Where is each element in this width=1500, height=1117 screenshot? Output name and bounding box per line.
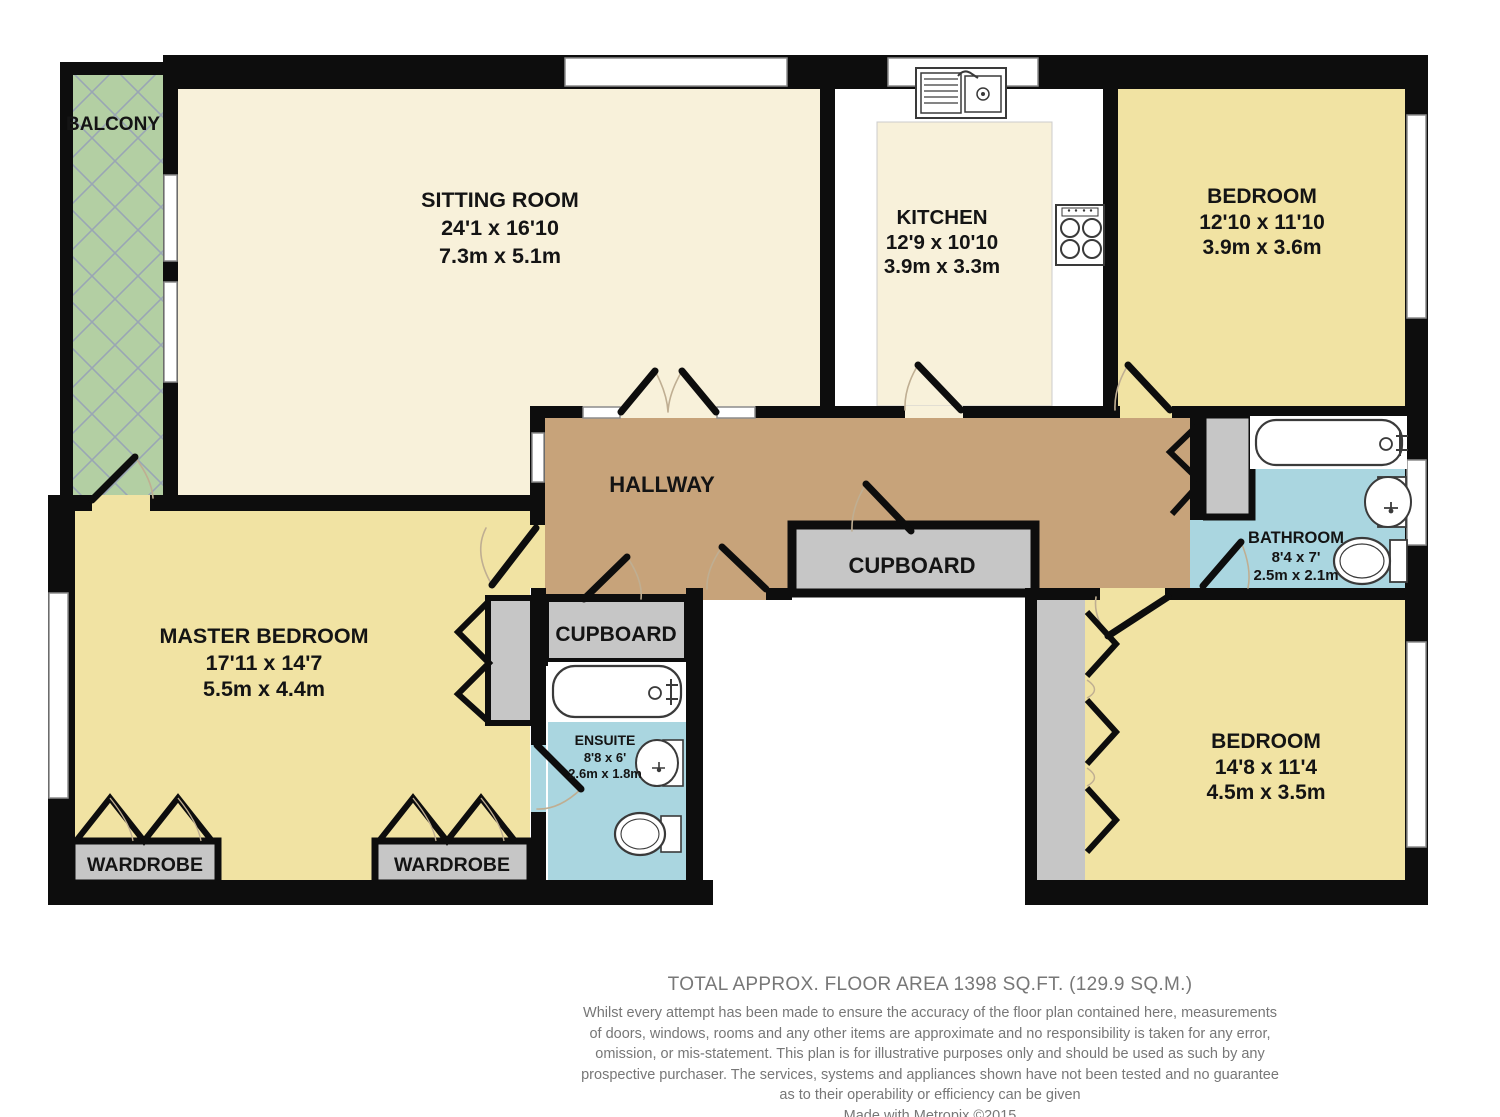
hall-cupboard-label: CUPBOARD [848, 553, 975, 578]
disclaimer: Whilst every attempt has been made to en… [430, 1003, 1430, 1106]
balcony-window-upper [164, 175, 177, 261]
floorplan-page: BALCONY SITTING ROOM 24'1 x 16'10 7.3m x… [0, 0, 1500, 1117]
wardrobe-right-label: WARDROBE [394, 854, 510, 876]
ensuite-bathtub-icon [548, 662, 686, 722]
bedroom-top-size-metric: 3.9m x 3.6m [1202, 236, 1321, 259]
footer: TOTAL APPROX. FLOOR AREA 1398 SQ.FT. (12… [430, 974, 1430, 1117]
total-floor-area: TOTAL APPROX. FLOOR AREA 1398 SQ.FT. (12… [430, 974, 1430, 996]
sitting-room-window [565, 58, 787, 86]
inner-cupboard-label: CUPBOARD [555, 623, 676, 646]
master-bedroom-label: MASTER BEDROOM [159, 624, 368, 648]
bathroom-sink-icon [1365, 477, 1411, 527]
ensuite-size-imperial: 8'8 x 6' [584, 750, 626, 765]
ensuite-toilet-icon [615, 813, 681, 855]
disclaimer-line: of doors, windows, rooms and any other i… [430, 1024, 1430, 1045]
sitting-room-size-imperial: 24'1 x 16'10 [441, 216, 559, 240]
ensuite-sink-icon [636, 740, 683, 786]
wardrobe-left-label: WARDROBE [87, 854, 203, 876]
bedroom-top-window [1407, 115, 1426, 318]
bathroom-size-imperial: 8'4 x 7' [1272, 549, 1321, 566]
balcony-label: BALCONY [66, 114, 160, 135]
hall-door-jamb-left [583, 407, 620, 418]
hob-icon [1056, 205, 1104, 265]
kitchen-label: KITCHEN [896, 206, 987, 229]
bedroom-top-label: BEDROOM [1207, 185, 1317, 208]
ensuite-label: ENSUITE [575, 732, 636, 748]
floorplan-drawing: BALCONY SITTING ROOM 24'1 x 16'10 7.3m x… [0, 0, 1500, 935]
hall-door-jamb-right [717, 407, 755, 418]
ensuite-size-metric: 2.6m x 1.8m [568, 766, 642, 781]
bathroom-airing-cupboard [1203, 415, 1252, 517]
master-bedroom-size-metric: 5.5m x 4.4m [203, 677, 325, 701]
sitting-room-size-metric: 7.3m x 5.1m [439, 244, 561, 268]
balcony-hatch [73, 75, 163, 500]
kitchen-sink-icon [916, 68, 1006, 118]
bathroom-bathtub-icon [1250, 416, 1408, 469]
bedroom-bottom-window [1407, 642, 1426, 847]
metropix-credit: Made with Metropix ©2015 [430, 1106, 1430, 1117]
disclaimer-line: as to their operability or efficiency ca… [430, 1085, 1430, 1106]
bathroom-toilet-icon [1334, 538, 1407, 584]
disclaimer-line: omission, or mis-statement. This plan is… [430, 1044, 1430, 1065]
kitchen-size-imperial: 12'9 x 10'10 [886, 231, 998, 254]
bathroom-label: BATHROOM [1248, 529, 1344, 547]
disclaimer-line: prospective purchaser. The services, sys… [430, 1065, 1430, 1086]
bedroom-bottom-label: BEDROOM [1211, 730, 1321, 753]
bedroom-bottom-size-imperial: 14'8 x 11'4 [1215, 756, 1318, 779]
master-bedroom-window [49, 593, 68, 798]
balcony-window-lower [164, 282, 177, 382]
bedroom-top-size-imperial: 12'10 x 11'10 [1199, 211, 1325, 234]
bedroom-bottom-wardrobe-strip [1037, 600, 1085, 880]
sitting-room-label: SITTING ROOM [421, 188, 579, 212]
master-bedroom-size-imperial: 17'11 x 14'7 [206, 651, 323, 675]
kitchen-size-metric: 3.9m x 3.3m [884, 255, 1000, 278]
disclaimer-line: Whilst every attempt has been made to en… [430, 1003, 1430, 1024]
bedroom-bottom-size-metric: 4.5m x 3.5m [1206, 781, 1325, 804]
master-wardrobe-strip [488, 598, 533, 723]
hallway-window [532, 433, 544, 482]
bathroom-size-metric: 2.5m x 2.1m [1253, 567, 1338, 584]
hallway-label: HALLWAY [609, 472, 715, 497]
